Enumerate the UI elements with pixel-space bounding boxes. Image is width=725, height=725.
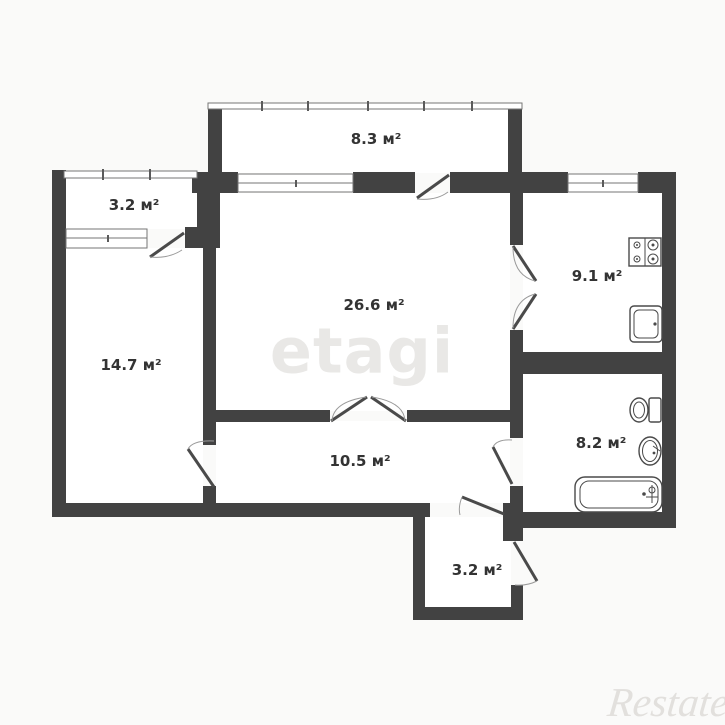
- toilet-icon: [630, 398, 661, 422]
- room-label-bathroom: 8.2 м²: [576, 434, 627, 452]
- kitchen-sink-icon: [630, 306, 662, 342]
- window-bedroom-to-balcony: [66, 229, 147, 248]
- washbasin-icon: [639, 437, 661, 465]
- window-kitchen: [568, 174, 638, 192]
- door-entry: [514, 542, 537, 585]
- room-label-bedroom: 14.7 м²: [100, 356, 161, 374]
- room-label-hallway: 10.5 м²: [329, 452, 390, 470]
- room-label-kitchen: 9.1 м²: [572, 267, 623, 285]
- stove-icon: [629, 238, 661, 266]
- room-label-balcony-top: 8.3 м²: [351, 130, 402, 148]
- window-living-to-balcony: [238, 174, 353, 192]
- room-label-balcony-left: 3.2 м²: [109, 196, 160, 214]
- floor-plan-canvas: etagi Restate 8.3 м² 3.2 м² 26.6 м² 9.1 …: [0, 0, 725, 725]
- bathtub-icon: [575, 477, 662, 512]
- watermark-etagi: etagi: [270, 315, 454, 388]
- room-label-living-room: 26.6 м²: [343, 296, 404, 314]
- watermark-restate: Restate: [605, 678, 725, 725]
- room-label-entry-vestibule: 3.2 м²: [452, 561, 503, 579]
